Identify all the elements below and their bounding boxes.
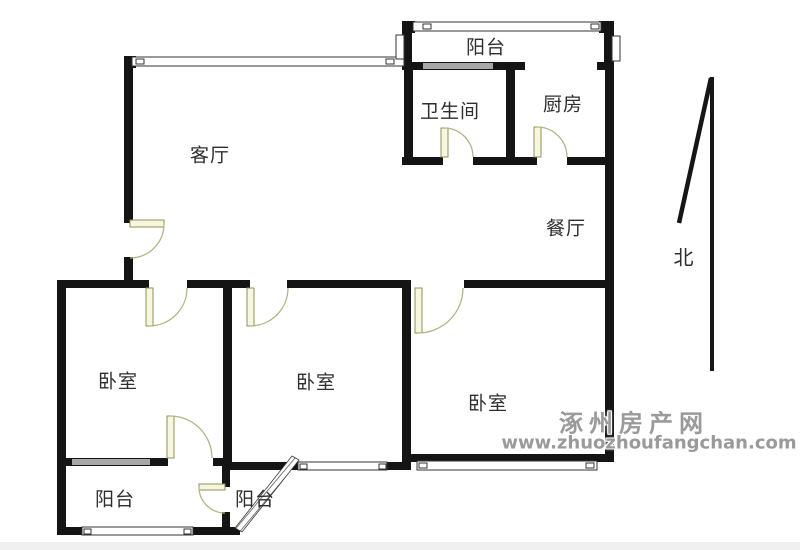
room-label-dining-room: 餐厅 bbox=[546, 214, 586, 241]
room-label-bedroom-left: 卧室 bbox=[98, 367, 138, 394]
bathroom-window bbox=[423, 63, 493, 69]
bedroom-right-window bbox=[417, 461, 597, 470]
room-label-balcony-bottom-left: 阳台 bbox=[95, 485, 135, 512]
balcony-right-side-window bbox=[612, 36, 620, 61]
bathroom-door bbox=[441, 128, 473, 157]
kitchen-door bbox=[534, 127, 567, 157]
balcony-divider-door bbox=[199, 484, 225, 513]
floor-plan-drawing bbox=[0, 0, 800, 550]
watermark-site-url: www.zhuozhoufangchan.com bbox=[501, 433, 796, 454]
walls bbox=[57, 21, 614, 535]
floor-plan: 客厅 阳台 卫生间 厨房 餐厅 卧室 卧室 卧室 阳台 阳台 北 涿州房产网 w… bbox=[0, 0, 800, 550]
room-label-living-room: 客厅 bbox=[190, 141, 230, 168]
balcony-left-side-window bbox=[396, 35, 404, 59]
footer-strip bbox=[0, 542, 800, 550]
north-label: 北 bbox=[674, 242, 695, 271]
room-label-bathroom: 卫生间 bbox=[420, 97, 480, 124]
living-room-window bbox=[132, 57, 404, 66]
room-label-balcony-top: 阳台 bbox=[466, 33, 506, 60]
room-label-bedroom-right: 卧室 bbox=[468, 389, 508, 416]
bedroom-right-door bbox=[415, 288, 463, 333]
bedroom-middle-door bbox=[247, 288, 288, 326]
balcony-access-door bbox=[167, 416, 212, 458]
room-label-bedroom-middle: 卧室 bbox=[296, 368, 336, 395]
bedroom-middle-window bbox=[298, 462, 387, 470]
bedroom-left-window bbox=[72, 459, 150, 465]
north-arrow-icon bbox=[679, 77, 712, 371]
room-label-kitchen: 厨房 bbox=[543, 90, 583, 117]
room-label-balcony-bottom-middle: 阳台 bbox=[235, 485, 275, 512]
entry-door bbox=[130, 220, 164, 258]
balcony-top-window bbox=[413, 22, 601, 31]
bedroom-left-door bbox=[146, 288, 187, 326]
balcony-bottom-window bbox=[82, 527, 193, 535]
